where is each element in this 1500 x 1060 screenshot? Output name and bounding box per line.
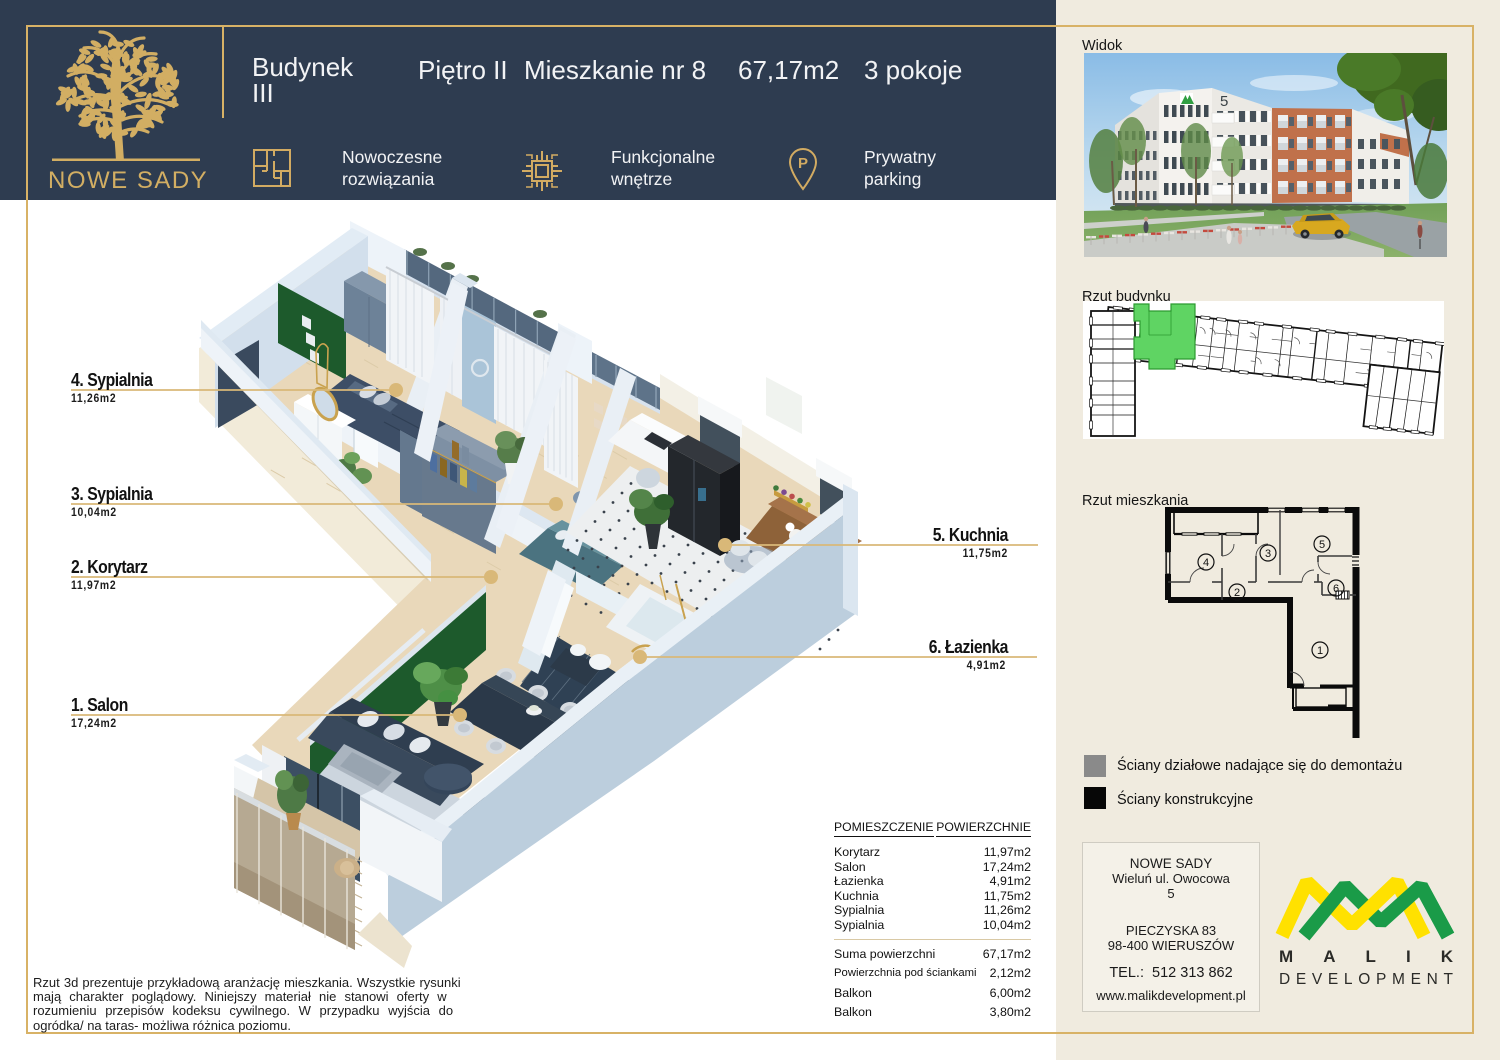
svg-text:3: 3 [1265, 548, 1271, 560]
svg-text:P: P [798, 155, 808, 172]
svg-text:6: 6 [1333, 583, 1339, 595]
svg-text:1: 1 [1317, 645, 1323, 657]
svg-text:5: 5 [1220, 93, 1228, 110]
svg-text:5: 5 [1319, 539, 1325, 551]
svg-text:4: 4 [1203, 557, 1209, 569]
svg-text:2: 2 [1234, 587, 1240, 599]
